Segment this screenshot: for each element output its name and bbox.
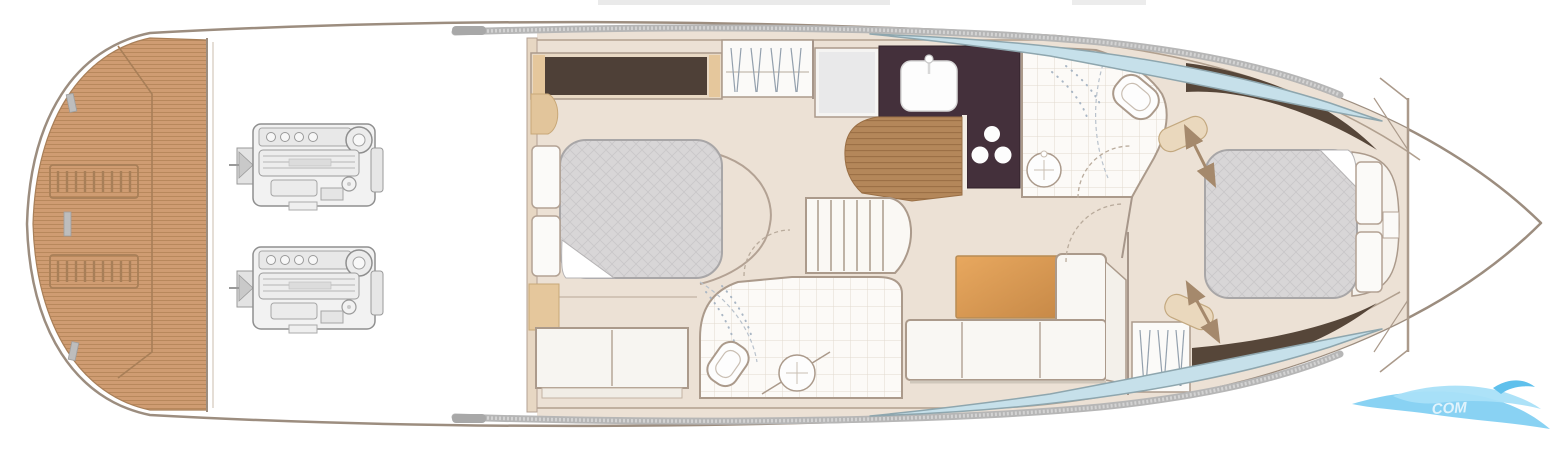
wardrobe <box>531 53 722 99</box>
galley-faucet <box>925 55 933 63</box>
mid-bed-pillow-1 <box>532 146 560 208</box>
fwd-bed-shelf <box>1383 212 1399 238</box>
watermark-text: COM <box>1431 399 1467 418</box>
watermark: COM <box>1352 380 1550 429</box>
mid-bed-headboard <box>531 94 558 134</box>
watermark-wave-fin <box>1493 380 1535 394</box>
top-edge-artifact-left <box>598 0 890 5</box>
top-edge-artifact-right <box>1072 0 1146 5</box>
mid-cabin-tan-step <box>529 284 559 330</box>
aft-bath-sink <box>779 355 815 391</box>
dinette-table <box>956 256 1060 318</box>
hanging-locker-mid <box>722 40 813 97</box>
fwd-bed-pillow-1 <box>1356 162 1382 224</box>
mid-cabin-sofa <box>536 328 688 398</box>
mid-bed-pillow-2 <box>532 216 560 276</box>
fwd-bed-pillow-2 <box>1356 232 1382 292</box>
galley-floor <box>845 117 962 201</box>
swim-platform <box>33 38 207 410</box>
companionway-stairs <box>806 198 911 273</box>
yacht-lower-deck-floor-plan: COM <box>0 0 1560 449</box>
wardrobe-dark-front <box>545 57 707 95</box>
galley-counter-gap <box>962 115 967 190</box>
fwd-bed-mattress <box>1205 150 1357 298</box>
